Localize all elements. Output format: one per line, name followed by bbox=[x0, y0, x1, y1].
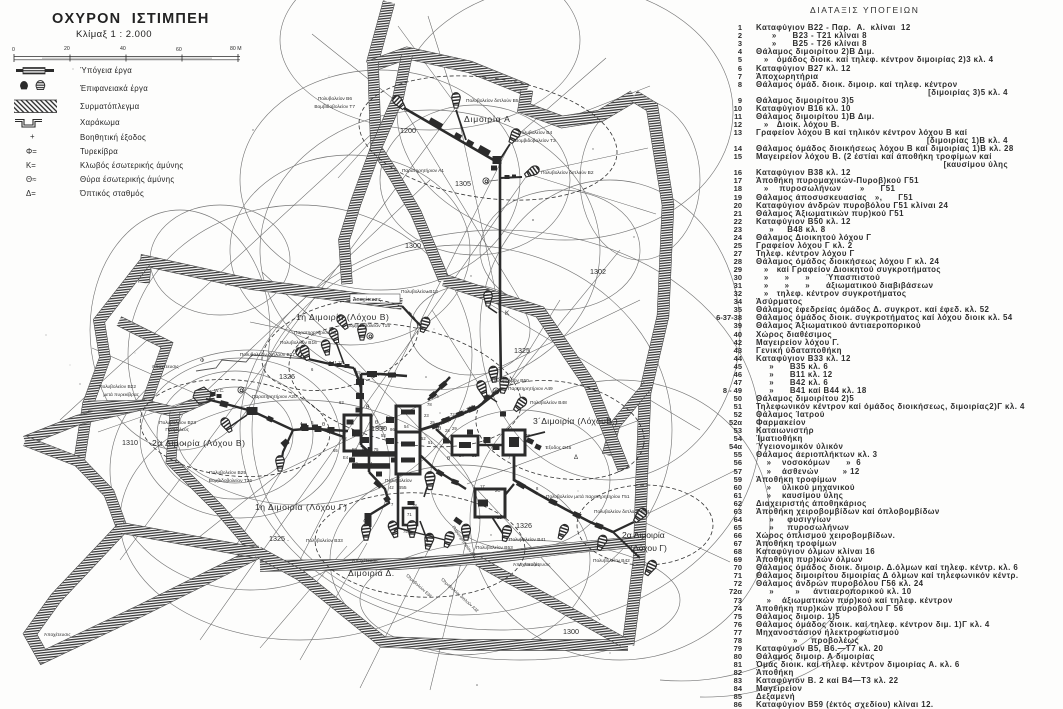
svg-text:Θ≈: Θ≈ bbox=[26, 175, 37, 184]
svg-text:Δ=: Δ= bbox=[26, 189, 36, 198]
svg-text:60: 60 bbox=[176, 47, 182, 53]
svg-text:40: 40 bbox=[120, 46, 126, 52]
svg-text:20: 20 bbox=[64, 46, 70, 52]
svg-text:Φ=: Φ= bbox=[26, 147, 37, 156]
svg-text:Κ=: Κ= bbox=[26, 161, 36, 170]
svg-text:+: + bbox=[30, 132, 35, 141]
svg-text:80 M: 80 M bbox=[230, 46, 242, 52]
svg-text:0: 0 bbox=[12, 47, 15, 53]
